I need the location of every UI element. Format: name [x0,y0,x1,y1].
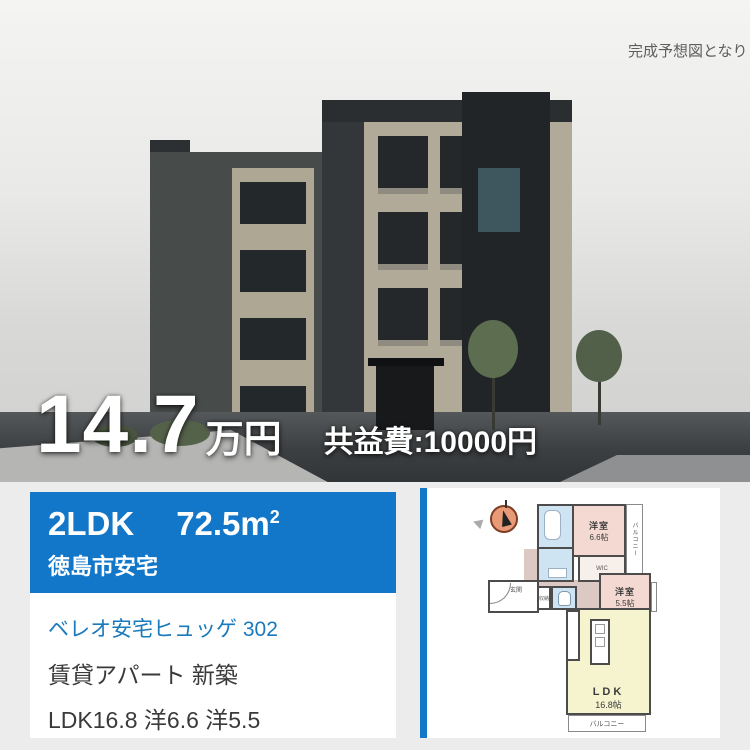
window-marking [651,582,657,612]
stove-icon [595,624,605,634]
common-fee: 共益費:10000円 [324,417,537,461]
property-category: 賃貸アパート 新築 [48,656,396,690]
washroom [537,547,574,582]
building-tower-window [478,168,520,232]
storage-label: 収納 [539,595,549,602]
tree [468,320,518,378]
sink-icon [595,637,605,647]
storage: 収納 [537,586,551,610]
layout-type: 2LDK [48,505,134,543]
rent-amount: 14.7 [36,384,200,466]
balcony-label: バルコニー [630,522,639,557]
building-window [378,288,428,346]
floorplan-drawing: 洋室 6.6帖 バルコニー WIC 玄関 収納 [427,488,720,738]
ldk-closet [566,610,580,661]
floor-area: 72.5m2 [176,505,280,543]
wic-label: WIC [596,566,608,572]
building-window [378,212,428,270]
bathroom [537,504,574,549]
building-window [378,136,428,194]
tree [576,330,622,382]
listing-flyer: 完成予想図となります 14.7 万円 共益費:10000円 2LDK 72.5m… [0,0,750,750]
summary-header: 2LDK 72.5m2 徳島市安宅 [30,492,396,593]
door-swing-icon [490,583,511,604]
building-right-dark-column [322,100,364,430]
room-size: 16.8帖 [566,698,651,711]
room-label: LDK [566,686,651,698]
summary-body: ベレオ安宅ヒュッゲ 302 賃貸アパート 新築 LDK16.8 洋6.6 洋5.… [30,593,396,735]
sink-icon [548,568,567,578]
building-window [240,250,306,292]
bathtub-icon [544,510,561,540]
kitchen-counter [590,619,610,665]
compass-tick [505,500,507,508]
entrance: 玄関 [488,580,539,613]
entrance-canopy [368,358,444,366]
compass-north-icon [490,505,518,533]
entrance-label: 玄関 [510,585,522,594]
compass-needle [498,509,512,527]
toilet [551,586,577,610]
bottom-balcony: バルコニー [568,715,646,732]
property-title-link[interactable]: ベレオ安宅ヒュッゲ 302 [48,613,396,643]
property-location: 徳島市安宅 [48,549,396,581]
layout-size-line: 2LDK 72.5m2 [48,505,396,543]
building-window [240,182,306,224]
room-label: 洋室 [615,585,635,598]
property-summary-card: 2LDK 72.5m2 徳島市安宅 ベレオ安宅ヒュッゲ 302 賃貸アパート 新… [30,492,396,738]
building-window [240,318,306,360]
toilet-icon [558,591,571,606]
direction-arrow-icon [472,517,484,529]
floorplan-panel: 洋室 6.6帖 バルコニー WIC 玄関 収納 [420,488,720,738]
bedroom-6-6: 洋室 6.6帖 [572,504,626,557]
render-disclaimer-caption: 完成予想図となります [628,40,750,61]
room-label: 洋室 [589,519,609,532]
building-photo: 完成予想図となります 14.7 万円 共益費:10000円 [0,0,750,482]
room-size: 6.6帖 [589,532,608,543]
balcony-label: バルコニー [590,719,625,729]
room-sizes-line: LDK16.8 洋6.6 洋5.5 [48,701,396,735]
side-balcony: バルコニー [626,504,643,574]
room-size: 5.5帖 [615,598,634,609]
rent-unit: 万円 [206,408,282,463]
price-overlay: 14.7 万円 共益費:10000円 [36,384,537,466]
ldk-label-block: LDK 16.8帖 [566,686,651,711]
building-corner-tower [462,92,550,430]
